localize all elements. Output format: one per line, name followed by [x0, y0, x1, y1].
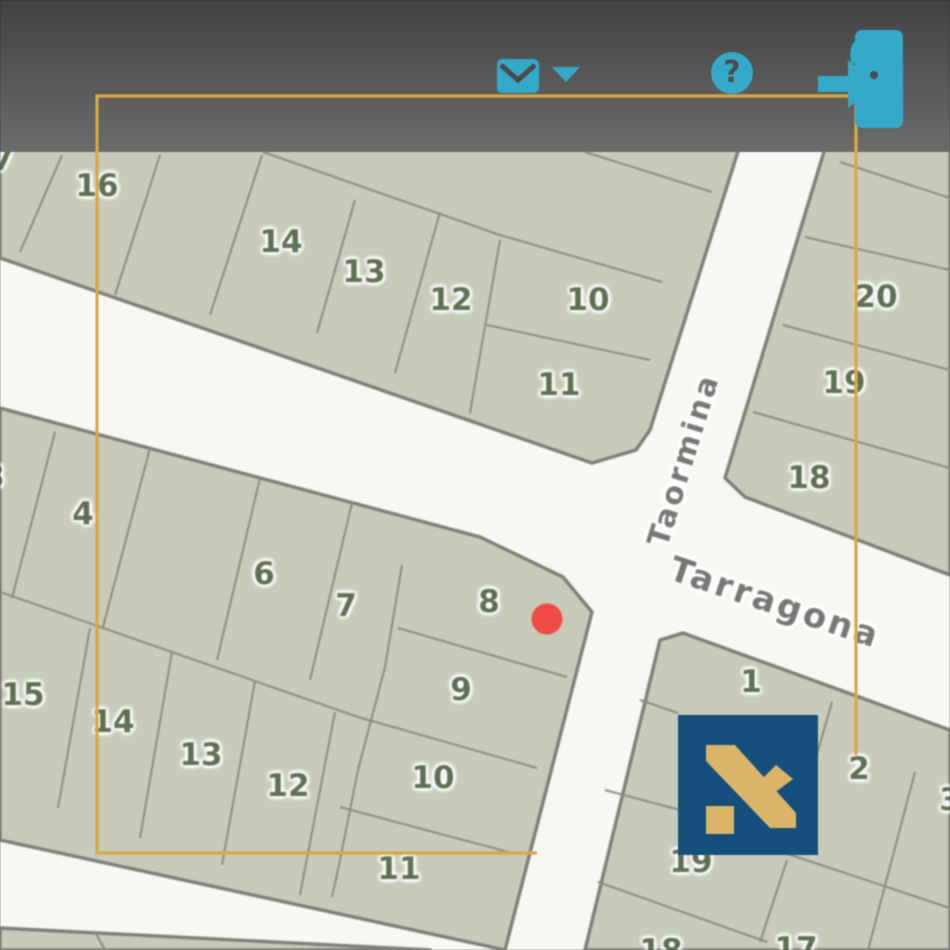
- block-middle[interactable]: [0, 408, 592, 950]
- logout-button[interactable]: [798, 18, 910, 132]
- envelope-icon: [497, 59, 539, 93]
- exit-door-icon: [798, 18, 910, 132]
- block-top-left[interactable]: [0, 145, 740, 463]
- brand-k-mark-icon: [678, 715, 818, 855]
- brand-logo: [678, 715, 818, 855]
- block-bottom-left[interactable]: [0, 928, 430, 950]
- help-button[interactable]: ?: [711, 52, 753, 94]
- toolbar-actions: ?: [0, 0, 950, 152]
- question-icon: ?: [711, 52, 753, 94]
- chevron-down-icon[interactable]: [552, 67, 580, 82]
- screen: 7161413121011201918346789101115141312123…: [0, 0, 950, 950]
- map-marker[interactable]: [532, 604, 563, 635]
- messages-button[interactable]: [488, 50, 588, 100]
